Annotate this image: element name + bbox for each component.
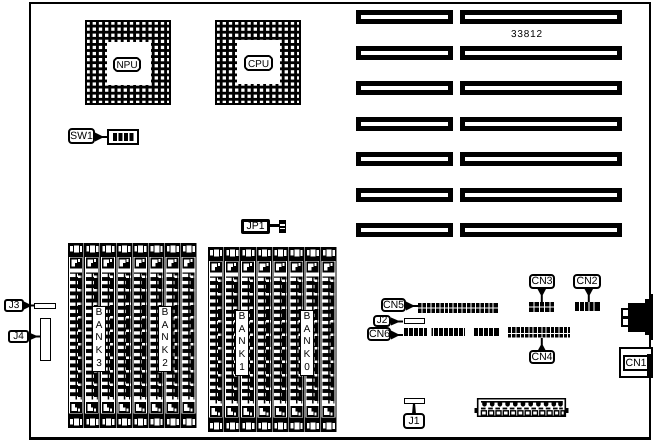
svg-text:CPU: CPU: [248, 59, 269, 70]
svg-text:NPU: NPU: [116, 60, 137, 71]
